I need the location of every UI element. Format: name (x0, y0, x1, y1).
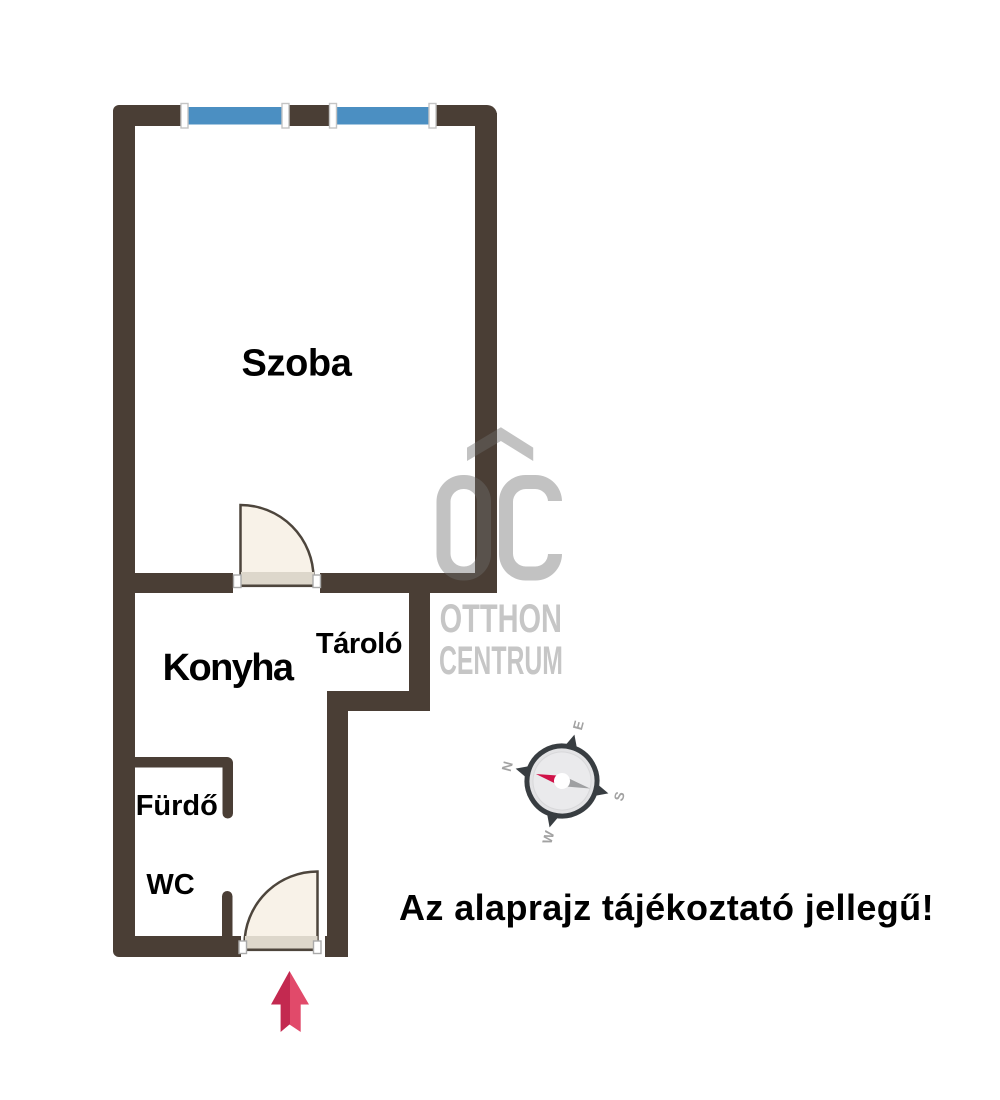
svg-text:Fürdő: Fürdő (136, 790, 218, 822)
svg-text:OTTHON: OTTHON (440, 597, 562, 642)
svg-text:WC: WC (146, 869, 194, 901)
svg-text:Szoba: Szoba (242, 343, 353, 385)
svg-text:Az alaprajz tájékoztató jelleg: Az alaprajz tájékoztató jellegű! (399, 887, 934, 928)
svg-text:Tároló: Tároló (316, 628, 402, 660)
svg-text:CENTRUM: CENTRUM (439, 639, 563, 683)
svg-text:Konyha: Konyha (163, 647, 295, 689)
